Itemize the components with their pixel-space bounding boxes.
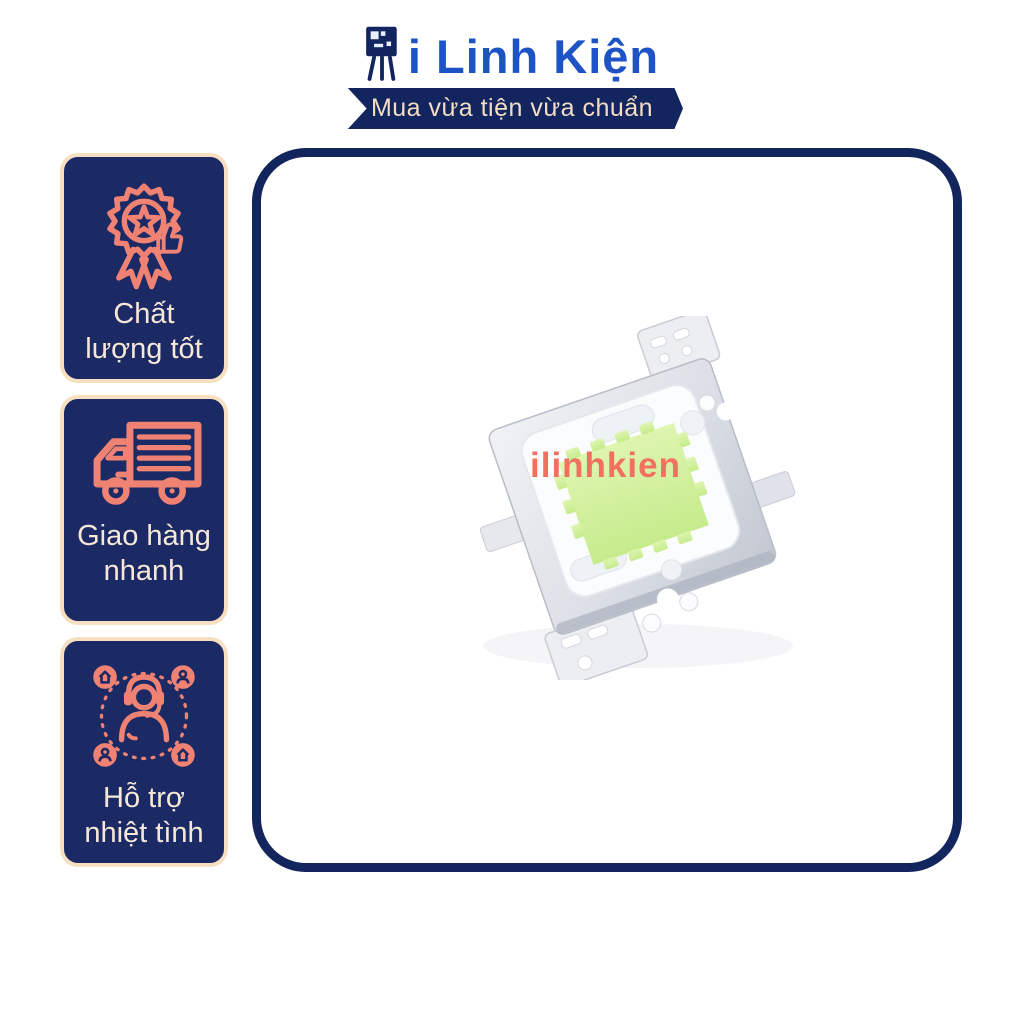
badge-quality-label: Chất lượng tốt <box>85 297 202 367</box>
brand-header: i Linh Kiện Mua vừa tiện vừa chuẩn <box>0 22 1024 129</box>
badge-support-label: Hỗ trợ nhiệt tình <box>84 781 203 851</box>
product-photo: ilinhkien <box>438 316 830 680</box>
delivery-truck-icon <box>83 415 205 513</box>
tagline-text: Mua vừa tiện vừa chuẩn <box>371 94 653 123</box>
watermark-text: ilinhkien <box>530 446 681 486</box>
badge-support: Hỗ trợ nhiệt tình <box>60 637 228 867</box>
tagline-ribbon: Mua vừa tiện vừa chuẩn <box>341 88 683 129</box>
brand-title: i Linh Kiện <box>408 33 659 84</box>
feature-badges: Chất lượng tốt Giao hàng nhanh <box>60 153 228 867</box>
transistor-icon <box>365 24 399 84</box>
led-chip <box>438 316 830 680</box>
badge-quality: Chất lượng tốt <box>60 153 228 383</box>
brand-row: i Linh Kiện <box>365 22 659 84</box>
badge-delivery-label: Giao hàng nhanh <box>77 519 211 589</box>
badge-delivery: Giao hàng nhanh <box>60 395 228 625</box>
customer-support-icon <box>85 657 203 775</box>
quality-medal-icon <box>86 173 202 291</box>
led-chip-image <box>438 316 830 680</box>
